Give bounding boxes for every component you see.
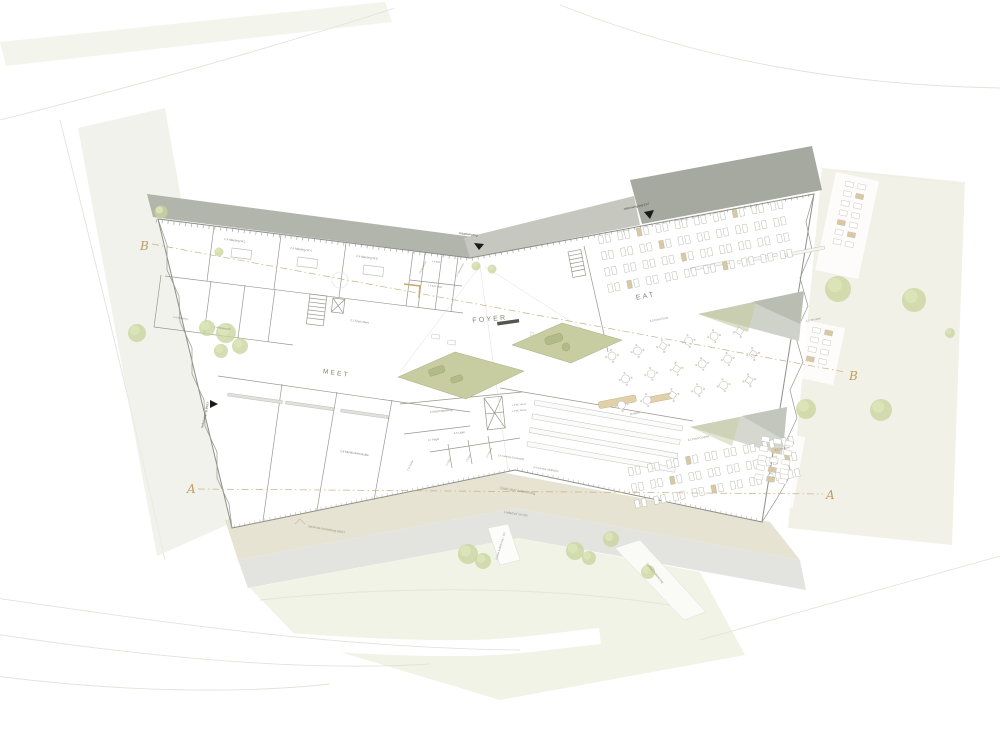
tree (603, 531, 619, 547)
tree (870, 399, 892, 421)
terrace-table (780, 469, 789, 475)
terrace-table (759, 445, 768, 451)
site-band-top (0, 2, 392, 66)
tree (472, 262, 481, 271)
tree (214, 344, 228, 358)
terrace-table (768, 466, 777, 472)
terrace-table (754, 474, 763, 480)
tree (945, 328, 955, 338)
terrace-table (761, 436, 770, 442)
section-marker-a-left: A (186, 482, 196, 496)
tree (232, 338, 248, 354)
tree (796, 399, 816, 419)
tree (488, 265, 497, 274)
terrace-table (773, 438, 782, 444)
tree (566, 542, 584, 560)
section-marker-b-right: B (848, 369, 858, 383)
tree (128, 324, 146, 342)
site-plan-drawing: B B A A FOYER EAT MEET Haupteingang Nebe… (0, 0, 1000, 750)
terrace-table (770, 457, 779, 463)
tree (825, 276, 851, 302)
terrace-table (781, 459, 790, 465)
tree (215, 248, 224, 257)
building (147, 146, 825, 528)
road-edge (0, 676, 330, 690)
terrace-table (766, 476, 775, 482)
terrace-table (756, 464, 765, 470)
tree (199, 320, 215, 336)
tree (902, 288, 926, 312)
section-marker-b-left: B (139, 239, 149, 253)
terrace-table (783, 450, 792, 456)
floor-plan-page: B B A A FOYER EAT MEET Haupteingang Nebe… (0, 0, 1000, 750)
terrace-table (758, 455, 767, 461)
contour-line (560, 5, 1000, 88)
terrace-table (778, 478, 787, 484)
tree (582, 551, 596, 565)
section-marker-a-right: A (825, 488, 835, 502)
tree (155, 206, 168, 219)
tree (475, 553, 491, 569)
